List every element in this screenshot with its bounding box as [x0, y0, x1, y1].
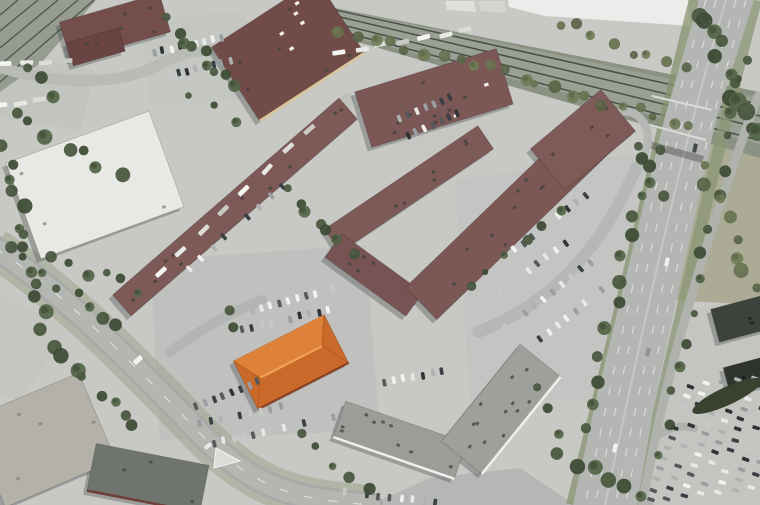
aerial-satellite-image	[0, 0, 760, 505]
aerial-canvas	[0, 0, 760, 505]
small-roof-top-2	[479, 1, 506, 13]
